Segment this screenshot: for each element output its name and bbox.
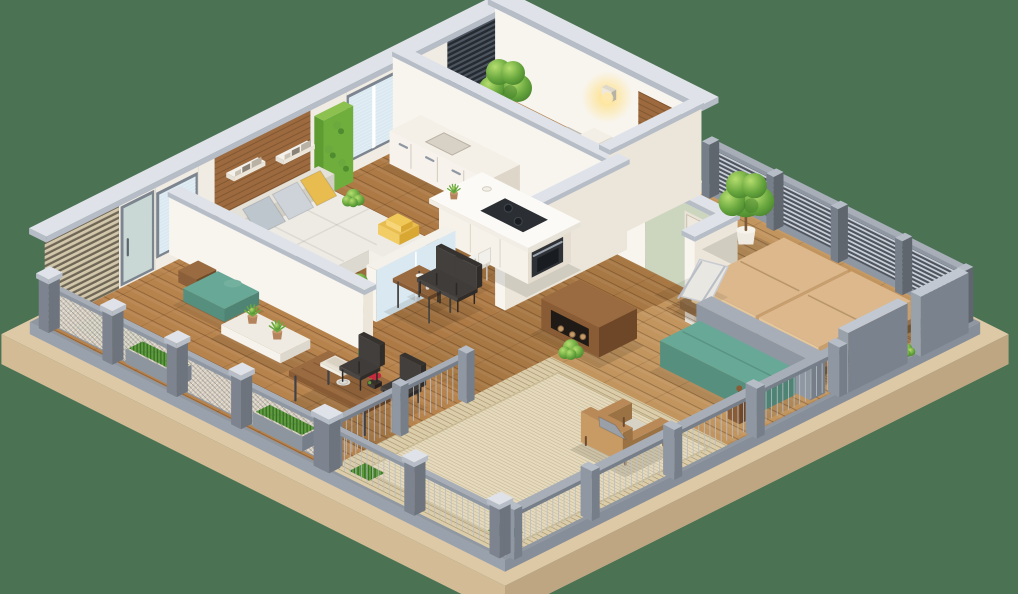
wall-lamp xyxy=(581,71,633,123)
railing-post xyxy=(36,266,62,333)
stage xyxy=(0,0,1018,594)
railing-post xyxy=(100,298,126,365)
railing-post xyxy=(317,407,343,474)
isometric-apartment-svg xyxy=(0,0,1018,594)
railing-post xyxy=(402,449,428,516)
railing-post xyxy=(164,330,190,397)
railing-post xyxy=(229,362,255,429)
railing-post xyxy=(487,492,513,559)
floor-plan-render xyxy=(0,0,1018,594)
